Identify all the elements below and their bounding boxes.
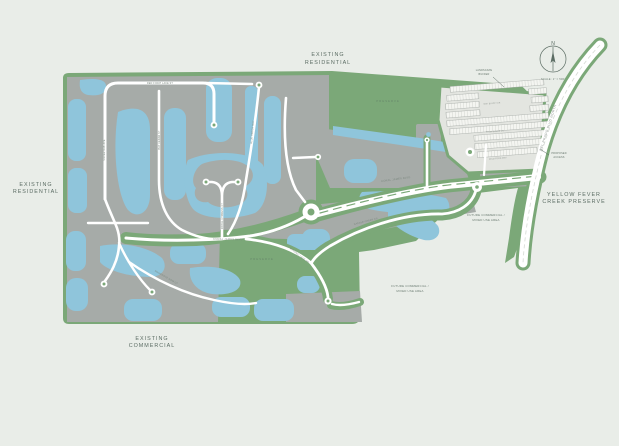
amenity-pool — [426, 132, 431, 137]
bay-cedar-label: BAY CEDAR ST — [158, 130, 161, 149]
landscape-buffer-line2: BUFFER — [479, 73, 490, 76]
future-commercial-south-line2: MIXED USE AREA — [396, 289, 423, 293]
royal-cypress-label: ROYAL CYPRESS CT — [221, 203, 224, 229]
master-plan-svg: N SCALE: 1" = 500' EXISTING RESIDENTIAL … — [0, 0, 619, 446]
preserve-south-label: PRESERVE — [250, 257, 274, 261]
existing-residential-top-line2: RESIDENTIAL — [305, 60, 351, 66]
preserve-north-label: PRESERVE — [376, 99, 400, 103]
existing-residential-top-line1: EXISTING — [311, 52, 344, 58]
main-blvd-south-label: CORAL JAMES BLVD — [213, 237, 243, 242]
red-finch-label: RED FINCH LAKE ST — [147, 82, 173, 85]
silver-oak-label: SILVER OAK AVE — [103, 139, 106, 160]
existing-residential-left-line1: EXISTING — [19, 182, 52, 188]
landscape-buffer-line1: LANDSCAPE — [476, 69, 493, 72]
scale-label: SCALE: 1" = 500' — [541, 77, 565, 81]
existing-residential-left-line2: RESIDENTIAL — [13, 189, 59, 195]
future-commercial-east-line2: MIXED USE AREA — [472, 218, 499, 222]
existing-commercial-line2: COMMERCIAL — [129, 343, 176, 349]
yellow-fever-line2: CREEK PRESERVE — [542, 199, 605, 205]
proposed-access-line1: PROPOSED — [551, 152, 566, 155]
future-commercial-east-line1: FUTURE COMMERCIAL / — [467, 213, 504, 217]
yellow-fever-line1: YELLOW FEVER — [547, 192, 601, 198]
existing-commercial-line1: EXISTING — [135, 336, 168, 342]
future-commercial-south-line1: FUTURE COMMERCIAL / — [391, 284, 428, 288]
compass-north-label: N — [551, 41, 555, 47]
proposed-access-line2: ACCESS — [553, 156, 564, 159]
site-plan-map: N SCALE: 1" = 500' EXISTING RESIDENTIAL … — [0, 0, 619, 446]
